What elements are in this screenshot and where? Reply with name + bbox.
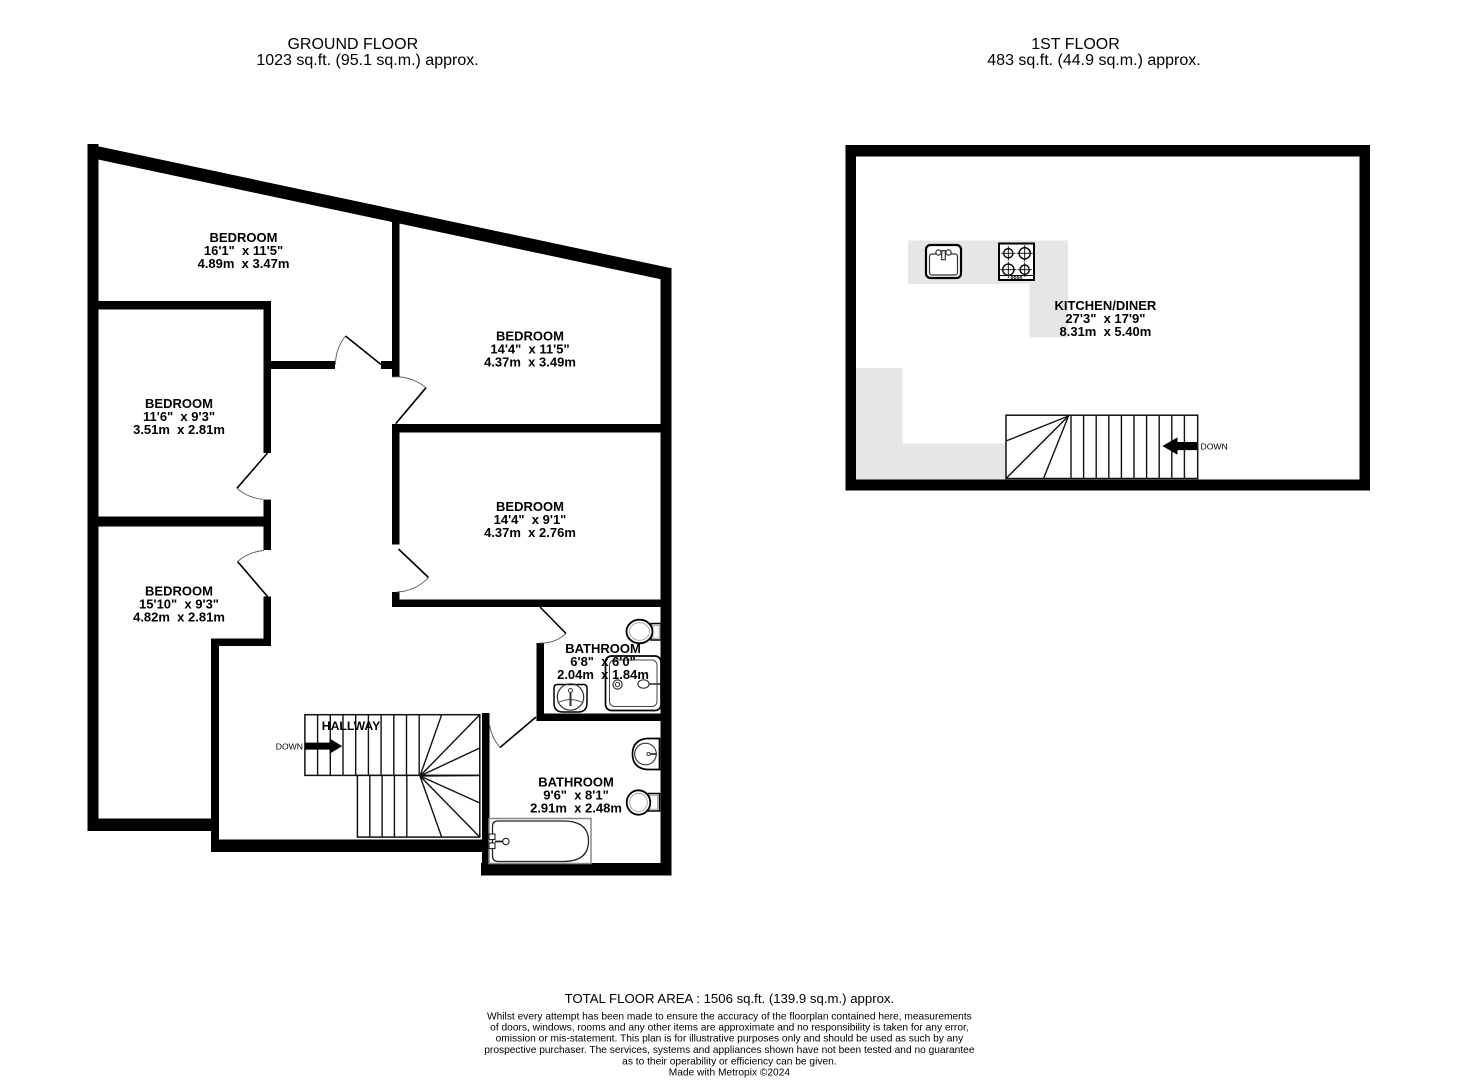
svg-text:2.91m x 2.48m: 2.91m x 2.48m bbox=[530, 801, 622, 816]
svg-text:4.82m x 2.81m: 4.82m x 2.81m bbox=[133, 610, 225, 625]
svg-text:1023 sq.ft. (95.1 sq.m.) appro: 1023 sq.ft. (95.1 sq.m.) approx. bbox=[256, 52, 478, 69]
svg-text:DOWN: DOWN bbox=[1201, 441, 1228, 451]
svg-text:4.89m x 3.47m: 4.89m x 3.47m bbox=[198, 256, 290, 271]
svg-text:1ST FLOOR: 1ST FLOOR bbox=[1031, 36, 1120, 53]
svg-text:2.04m x 1.84m: 2.04m x 1.84m bbox=[557, 667, 649, 682]
svg-text:4.37m x 3.49m: 4.37m x 3.49m bbox=[484, 355, 576, 370]
svg-text:4.37m x 2.76m: 4.37m x 2.76m bbox=[484, 525, 576, 540]
svg-text:prospective purchaser. The ser: prospective purchaser. The services, sys… bbox=[484, 1045, 975, 1056]
svg-text:omission or mis-statement. Thi: omission or mis-statement. This plan is … bbox=[496, 1034, 964, 1045]
svg-text:HALLWAY: HALLWAY bbox=[322, 719, 380, 733]
svg-text:8.31m x 5.40m: 8.31m x 5.40m bbox=[1060, 324, 1152, 339]
svg-text:3.51m x 2.81m: 3.51m x 2.81m bbox=[133, 422, 225, 437]
svg-text:Whilst every attempt has been: Whilst every attempt has been made to en… bbox=[487, 1011, 972, 1022]
svg-text:DOWN: DOWN bbox=[276, 741, 303, 751]
svg-text:GROUND FLOOR: GROUND FLOOR bbox=[287, 36, 418, 53]
svg-text:as to their operability or eff: as to their operability or efficiency ca… bbox=[622, 1057, 836, 1068]
svg-text:of doors, windows, rooms and a: of doors, windows, rooms and any other i… bbox=[490, 1022, 968, 1033]
svg-text:483 sq.ft. (44.9 sq.m.) approx: 483 sq.ft. (44.9 sq.m.) approx. bbox=[987, 52, 1200, 69]
svg-text:Made with Metropix ©2024: Made with Metropix ©2024 bbox=[669, 1068, 791, 1079]
svg-text:TOTAL FLOOR AREA : 1506 sq.ft.: TOTAL FLOOR AREA : 1506 sq.ft. (139.9 sq… bbox=[565, 991, 895, 1006]
